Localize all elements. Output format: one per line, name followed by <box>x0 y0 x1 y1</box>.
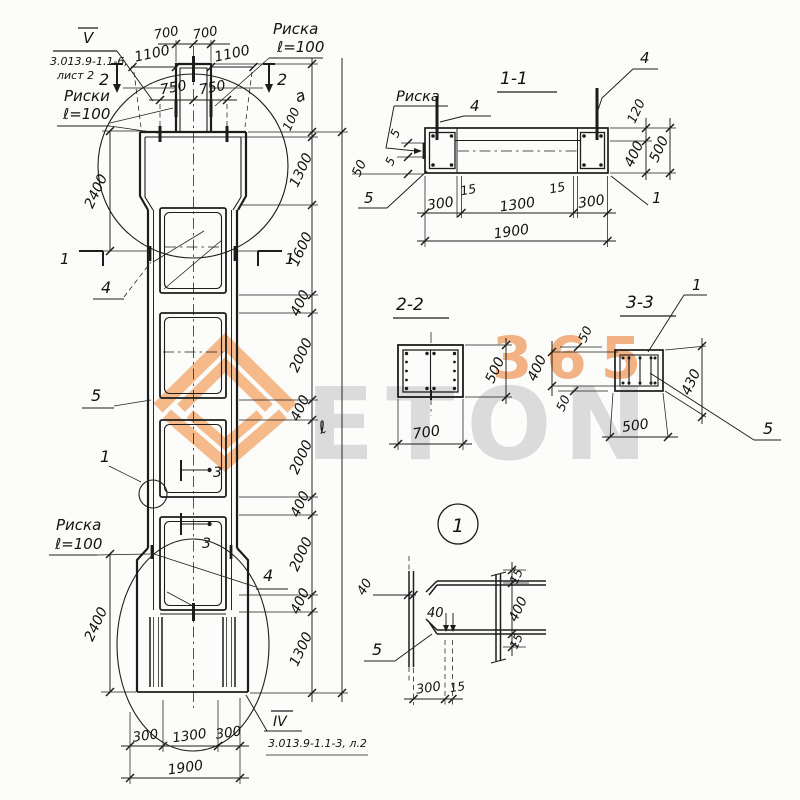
section-1-1-title: 1-1 <box>500 69 528 89</box>
ref-bottom-num: IV <box>273 714 288 730</box>
detail-1-view: 1 15 400 15 40 40 <box>354 504 546 705</box>
s11-dim-300-right: 300 <box>577 192 606 212</box>
s11-dim-50: 50 <box>350 158 371 179</box>
ref-top-line1: 3.013.9-1.1-6, <box>50 55 128 68</box>
d1-dim-40-inner: 40 <box>427 606 444 621</box>
s11-dim-300-left: 300 <box>426 194 455 214</box>
dim-a: a <box>292 85 308 106</box>
d1-dim-300: 300 <box>415 679 442 697</box>
detail-1-bubble: 1 <box>452 515 464 537</box>
item-4-bottom-label: 4 <box>263 566 273 585</box>
ref-mark-bottom: IV 3.013.9-1.1-3, л.2 <box>246 695 368 755</box>
ref-top-line2: лист 2 <box>56 69 94 82</box>
dim-2400-bottom: 2400 <box>82 605 112 644</box>
cut-2-right-label: 2 <box>277 70 287 89</box>
riska-topright-value: ℓ=100 <box>276 38 324 56</box>
s33-item-5: 5 <box>763 419 773 438</box>
d1-dim-15-bot: 15 <box>449 679 466 695</box>
s11-item-5: 5 <box>364 189 374 207</box>
d1-dim-400: 400 <box>506 594 531 624</box>
s33-item-1: 1 <box>692 276 702 294</box>
riska-topright-note: Риска <box>273 20 318 38</box>
cut-3-b-label: 3 <box>202 536 211 552</box>
item-5-label: 5 <box>91 386 101 405</box>
cut-1-left-label: 1 <box>60 250 70 268</box>
riska-bottom-note: Риска <box>56 516 101 534</box>
s11-dim-5b: 5 <box>382 155 398 168</box>
dim-b1300: 1300 <box>171 726 207 747</box>
riski-top-note-value: ℓ=100 <box>62 105 110 123</box>
s33-dim-430: 430 <box>678 367 704 398</box>
riska-bottom-value: ℓ=100 <box>54 535 102 553</box>
dim-100: 100 <box>279 105 303 133</box>
section-1-1-view: 1-1 Риска 4 4 5 1 <box>350 49 676 247</box>
s11-dim-1900: 1900 <box>493 222 531 243</box>
ref-bottom-text: 3.013.9-1.1-3, л.2 <box>268 737 367 750</box>
watermark: 365 ETON <box>158 324 659 483</box>
ref-top-num: V <box>83 29 95 47</box>
s11-dim-500: 500 <box>646 134 672 165</box>
cut-3-a-label: 3 <box>213 465 222 481</box>
s11-riska-note: Риска <box>396 89 440 105</box>
dim-b300-right: 300 <box>215 723 243 742</box>
dim-b1900: 1900 <box>167 758 205 779</box>
section-3-3-title: 3-3 <box>626 293 654 313</box>
item-1-label: 1 <box>100 447 110 466</box>
dim-400-1: 400 <box>287 288 313 319</box>
s11-item-1: 1 <box>652 189 662 207</box>
dim-1100-left: 1100 <box>133 43 171 66</box>
s11-item-4-right: 4 <box>640 49 650 67</box>
riski-top-note: Риски <box>64 87 110 105</box>
s11-dim-120: 120 <box>625 97 649 126</box>
dim-b300-left: 300 <box>132 726 160 745</box>
s11-dim-5a: 5 <box>387 127 403 140</box>
section-2-2-title: 2-2 <box>396 295 424 315</box>
s11-dim-15-left: 15 <box>459 181 477 199</box>
s11-dim-15-right: 15 <box>548 179 566 197</box>
dim-1100-right: 1100 <box>213 43 251 66</box>
s11-dim-1300: 1300 <box>499 195 537 216</box>
s11-item-4-left: 4 <box>470 97 480 115</box>
item-4-top-label: 4 <box>101 278 111 297</box>
blueprint-page: 365 ETON <box>0 0 800 800</box>
drawing-canvas: 365 ETON <box>0 0 800 800</box>
d1-dim-40-wall: 40 <box>354 576 375 598</box>
watermark-word: ETON <box>306 366 659 483</box>
d1-item-5: 5 <box>372 640 382 659</box>
